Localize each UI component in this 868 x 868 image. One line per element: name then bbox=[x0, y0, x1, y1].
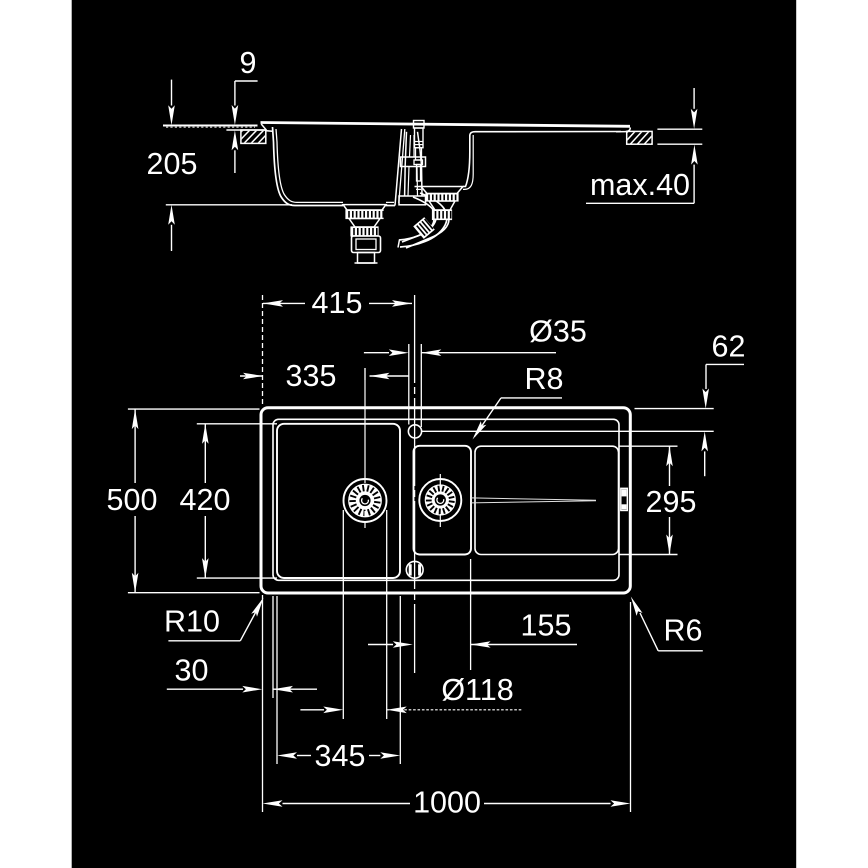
svg-text:R10: R10 bbox=[164, 604, 220, 638]
svg-text:420: 420 bbox=[180, 483, 231, 517]
svg-text:Ø35: Ø35 bbox=[529, 314, 587, 348]
svg-text:295: 295 bbox=[646, 485, 697, 519]
svg-text:500: 500 bbox=[107, 483, 158, 517]
svg-text:30: 30 bbox=[175, 653, 209, 687]
svg-text:R8: R8 bbox=[525, 362, 564, 396]
svg-text:1000: 1000 bbox=[413, 785, 481, 819]
svg-text:155: 155 bbox=[521, 608, 572, 642]
svg-text:415: 415 bbox=[312, 286, 363, 320]
svg-text:R6: R6 bbox=[664, 613, 703, 647]
svg-text:9: 9 bbox=[240, 46, 257, 80]
svg-text:335: 335 bbox=[286, 359, 337, 393]
svg-text:Ø118: Ø118 bbox=[441, 673, 513, 707]
svg-text:205: 205 bbox=[147, 147, 198, 181]
svg-text:62: 62 bbox=[712, 329, 746, 363]
svg-text:max.40: max.40 bbox=[590, 168, 690, 202]
svg-text:345: 345 bbox=[315, 739, 366, 773]
